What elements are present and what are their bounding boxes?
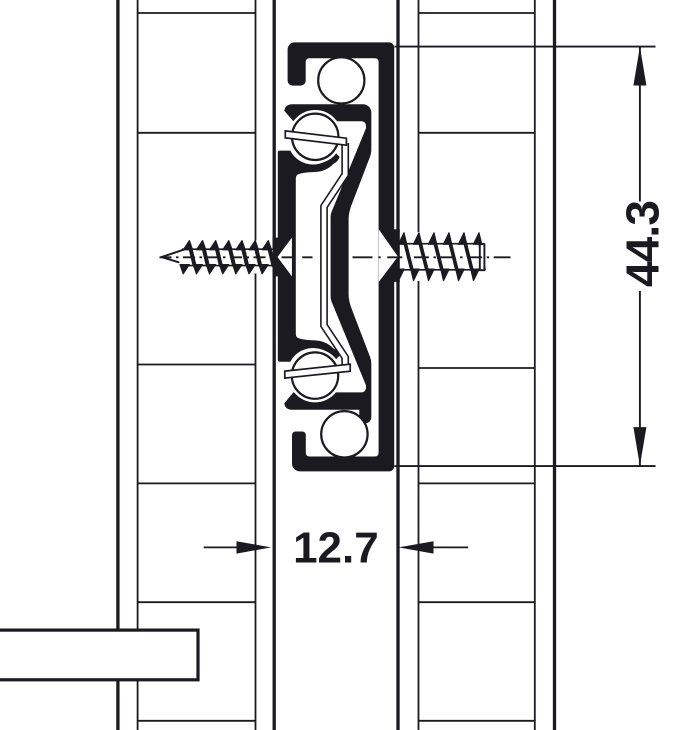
- svg-text:44.3: 44.3: [617, 201, 669, 287]
- svg-text:12.7: 12.7: [293, 524, 379, 573]
